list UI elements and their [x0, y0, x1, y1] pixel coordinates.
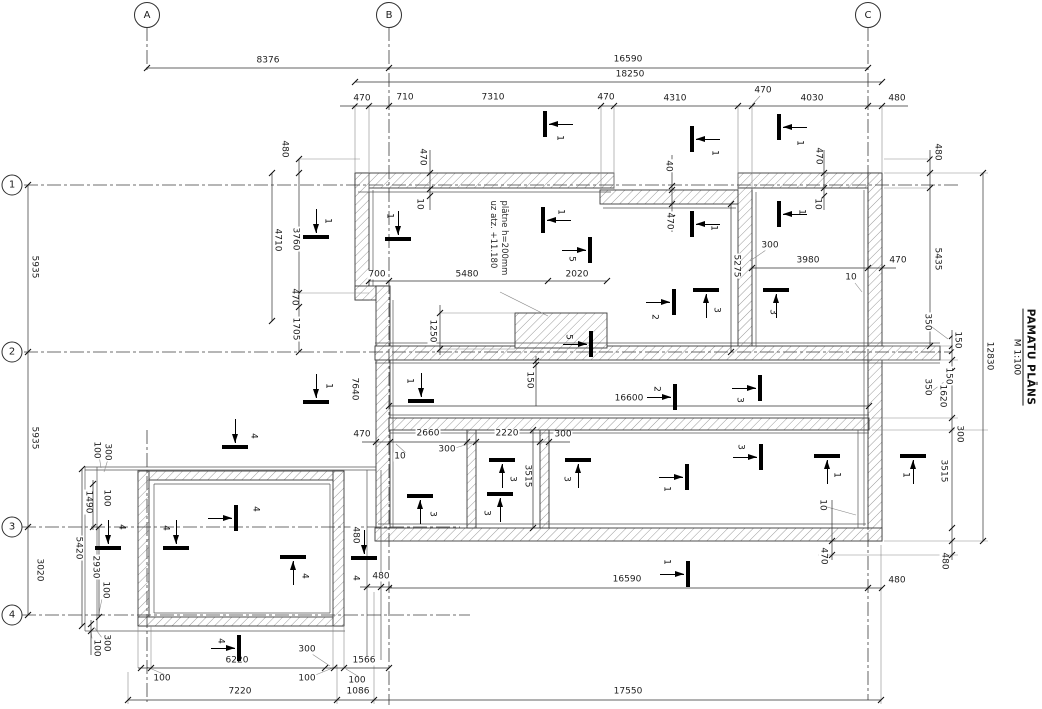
dim-label: 7640: [350, 377, 359, 402]
dim-label: 470: [888, 257, 907, 266]
section-marker-label: 1: [555, 135, 564, 141]
section-marker-arrow: [748, 454, 757, 460]
dim-label: 7220: [228, 688, 253, 697]
section-marker-arrow: [223, 515, 232, 521]
section-marker-label: 3: [562, 476, 571, 482]
dim-label: 480: [280, 139, 289, 158]
section-marker-bar: [487, 492, 513, 496]
section-marker-arrow: [773, 294, 779, 303]
section-marker-label: 1: [832, 472, 841, 478]
dim-label: 350: [923, 377, 932, 396]
section-marker-arrow: [395, 226, 401, 235]
dim-label: 480: [933, 142, 942, 161]
section-marker-bar: [541, 207, 545, 233]
section-marker-arrow: [783, 211, 792, 217]
section-marker-label: 4: [161, 525, 170, 531]
section-marker-arrow: [824, 460, 830, 469]
dim-label: 2020: [565, 271, 590, 280]
section-marker-bar: [234, 505, 238, 531]
dim-label: 300: [955, 424, 964, 443]
dim-label: 470: [596, 94, 615, 103]
dim-label: 470: [418, 147, 427, 166]
grid-axis-4: 4: [2, 605, 23, 626]
dim-label: 10: [813, 197, 822, 210]
section-marker-bar: [589, 331, 593, 357]
slab-note-line1: plātne h=200mm: [498, 201, 509, 276]
section-marker-arrow: [226, 645, 235, 651]
section-marker-label: 3: [712, 307, 721, 313]
section-marker-arrow: [674, 474, 683, 480]
section-marker-label: 1: [901, 472, 910, 478]
dim-label: 480: [351, 525, 360, 544]
section-marker-label: 1: [710, 150, 719, 156]
section-marker-label: 1: [709, 225, 718, 231]
section-marker-label: 3: [735, 397, 744, 403]
section-marker-label: 3: [508, 476, 517, 482]
dim-label: 2220: [495, 430, 520, 439]
section-marker-bar: [565, 458, 591, 462]
dim-label: 100: [152, 675, 171, 684]
section-marker-arrow: [313, 389, 319, 398]
dim-label: 10: [415, 197, 424, 210]
section-marker-arrow: [577, 247, 586, 253]
dim-label: 100: [92, 638, 101, 657]
dim-label: 5275: [732, 254, 741, 279]
section-marker-bar: [690, 126, 694, 152]
section-marker-bar: [163, 546, 189, 550]
section-marker-label: 1: [405, 378, 414, 384]
section-marker-arrow: [696, 221, 705, 227]
section-marker-arrow: [499, 464, 505, 473]
dim-label: 5480: [455, 271, 480, 280]
dim-label: 300: [102, 633, 111, 652]
dim-label: 1620: [938, 384, 947, 409]
section-marker-label: 1: [324, 383, 333, 389]
section-marker-label: 4: [351, 575, 360, 581]
section-marker-arrow: [173, 535, 179, 544]
section-marker-arrow: [662, 394, 671, 400]
section-marker-bar: [763, 288, 789, 292]
dim-label: 16600: [614, 395, 645, 404]
section-marker-bar: [303, 400, 329, 404]
section-marker-bar: [543, 111, 547, 137]
section-marker-label: 2: [652, 386, 661, 392]
section-marker-arrow: [418, 388, 424, 397]
section-marker-arrow: [578, 341, 587, 347]
section-marker-label: 1: [797, 209, 806, 215]
dim-label: 150: [525, 370, 534, 389]
dim-label: 3020: [35, 558, 44, 583]
section-marker-bar: [95, 546, 121, 550]
section-marker-bar: [303, 235, 329, 239]
section-marker-bar: [777, 201, 781, 227]
dim-label: 4310: [663, 95, 688, 104]
section-marker-label: 4: [216, 638, 225, 644]
dim-label: 100: [101, 580, 110, 599]
section-marker-bar: [673, 384, 677, 410]
section-marker-arrow: [783, 124, 792, 130]
section-marker-arrow: [313, 224, 319, 233]
foundation-plan-drawing: plātne h=200mm uz atz. +11.180 PAMATU PL…: [0, 0, 1042, 709]
section-marker-label: 5: [564, 334, 573, 340]
dim-label: 40: [664, 159, 673, 172]
section-marker-label: 1: [323, 218, 332, 224]
dim-label: 1250: [428, 319, 437, 344]
dim-label: 470: [819, 546, 828, 565]
dim-label: 3760: [291, 227, 300, 252]
section-marker-label: 3: [482, 510, 491, 516]
dim-label: 480: [887, 95, 906, 104]
grid-axis-3: 3: [2, 517, 23, 538]
section-marker-bar: [686, 561, 690, 587]
section-marker-bar: [280, 555, 306, 559]
dim-label: 300: [553, 431, 572, 440]
dim-label: 150: [953, 330, 962, 349]
dim-label: 1490: [84, 490, 93, 515]
dim-label: 16590: [613, 56, 644, 65]
section-marker-arrow: [910, 460, 916, 469]
section-marker-bar: [777, 114, 781, 140]
section-marker-label: 3: [736, 444, 745, 450]
section-marker-bar: [407, 494, 433, 498]
dim-label: 16590: [612, 576, 643, 585]
section-marker-bar: [693, 288, 719, 292]
grid-axis-C: C: [855, 2, 881, 28]
section-marker-label: 4: [117, 524, 126, 530]
section-marker-arrow: [105, 535, 111, 544]
section-marker-bar: [222, 445, 248, 449]
section-marker-label: 3: [428, 511, 437, 517]
section-marker-arrow: [575, 464, 581, 473]
dim-label: 5935: [30, 255, 39, 280]
dim-label: 470: [665, 211, 674, 230]
section-marker-bar: [690, 211, 694, 237]
section-marker-arrow: [661, 299, 670, 305]
section-marker-label: 1: [556, 209, 565, 215]
dim-label: 2930: [91, 555, 100, 580]
section-marker-bar: [672, 289, 676, 315]
dim-label: 2660: [416, 430, 441, 439]
section-marker-arrow: [232, 434, 238, 443]
section-marker-arrow: [417, 500, 423, 509]
section-marker-label: 4: [249, 433, 258, 439]
dim-label: 300: [760, 242, 779, 251]
section-marker-arrow: [361, 545, 367, 554]
section-marker-arrow: [497, 498, 503, 507]
dim-label: 300: [297, 646, 316, 655]
dim-label: 470: [352, 95, 371, 104]
dim-label: 17550: [613, 688, 644, 697]
dim-label: 3515: [523, 464, 532, 489]
dim-label: 18250: [615, 71, 646, 80]
dim-label: 10: [393, 453, 406, 462]
drawing-scale: M 1:100: [1012, 309, 1023, 406]
section-marker-bar: [588, 237, 592, 263]
grid-axis-A: A: [134, 2, 160, 28]
section-marker-arrow: [747, 385, 756, 391]
slab-note-line2: uz atz. +11.180: [487, 201, 498, 276]
section-marker-label: 1: [385, 213, 394, 219]
drawing-title-block: PAMATU PLĀNS M 1:100: [1012, 309, 1037, 406]
section-marker-bar: [385, 237, 411, 241]
dim-label: 5435: [933, 247, 942, 272]
section-marker-label: 3: [768, 309, 777, 315]
dim-label: 470: [753, 87, 772, 96]
section-marker-arrow: [675, 571, 684, 577]
section-marker-bar: [351, 556, 377, 560]
dim-label: 10: [844, 274, 857, 283]
section-marker-bar: [759, 444, 763, 470]
dim-label: 3515: [939, 459, 948, 484]
grid-axis-2: 2: [2, 342, 23, 363]
section-marker-arrow: [547, 217, 556, 223]
section-marker-bar: [408, 399, 434, 403]
grid-axis-B: B: [376, 2, 402, 28]
section-marker-arrow: [290, 561, 296, 570]
section-marker-bar: [685, 464, 689, 490]
dim-label: 4710: [273, 228, 282, 253]
dim-label: 5935: [30, 426, 39, 451]
dim-label: 100: [297, 675, 316, 684]
section-marker-bar: [900, 454, 926, 458]
dim-label: 10: [818, 498, 827, 511]
dim-label: 100: [347, 677, 366, 686]
section-marker-label: 1: [662, 486, 671, 492]
section-marker-label: 5: [567, 256, 576, 262]
annotation-layer: plātne h=200mm uz atz. +11.180 PAMATU PL…: [0, 0, 1042, 709]
dim-label: 480: [887, 577, 906, 586]
section-marker-arrow: [703, 294, 709, 303]
section-marker-bar: [237, 635, 241, 661]
dim-label: 470: [290, 287, 299, 306]
section-marker-arrow: [549, 121, 558, 127]
drawing-title: PAMATU PLĀNS: [1023, 309, 1037, 406]
dim-label: 100: [92, 440, 101, 459]
dim-label: 100: [102, 488, 111, 507]
dim-label: 1566: [352, 657, 377, 666]
section-marker-label: 2: [650, 314, 659, 320]
dim-label: 700: [367, 271, 386, 280]
dim-label: 8376: [256, 57, 281, 66]
section-marker-label: 4: [300, 573, 309, 579]
section-marker-bar: [758, 375, 762, 401]
section-marker-bar: [814, 454, 840, 458]
dim-label: 480: [940, 551, 949, 570]
dim-label: 480: [371, 573, 390, 582]
section-marker-arrow: [696, 136, 705, 142]
slab-note: plātne h=200mm uz atz. +11.180: [487, 201, 509, 276]
section-marker-label: 1: [795, 140, 804, 146]
dim-label: 300: [437, 446, 456, 455]
dim-label: 12830: [985, 341, 994, 372]
dim-label: 3980: [796, 257, 821, 266]
section-marker-bar: [489, 458, 515, 462]
section-marker-label: 1: [662, 559, 671, 565]
dim-label: 470: [814, 146, 823, 165]
dim-label: 300: [103, 442, 112, 461]
dim-label: 1705: [291, 317, 300, 342]
section-marker-label: 4: [251, 506, 260, 512]
dim-label: 470: [352, 431, 371, 440]
dim-label: 7310: [481, 94, 506, 103]
grid-axis-1: 1: [2, 175, 23, 196]
dim-label: 5420: [74, 536, 83, 561]
dim-label: 4030: [800, 95, 825, 104]
dim-label: 1086: [346, 688, 371, 697]
dim-label: 350: [923, 312, 932, 331]
dim-label: 710: [395, 94, 414, 103]
